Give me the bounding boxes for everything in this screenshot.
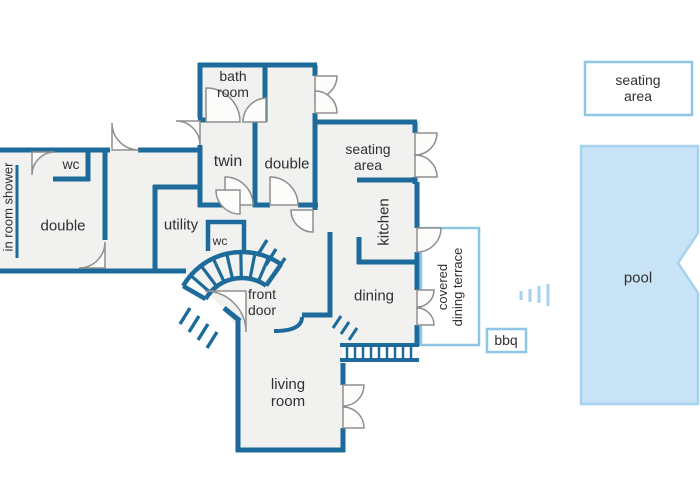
outdoor-seating-box (585, 62, 692, 115)
door-twin-west (176, 121, 200, 145)
bbq-box (487, 329, 526, 352)
door-corridor-exterior (112, 123, 139, 150)
door-double-french-b (315, 91, 337, 113)
door-living-east-b (343, 407, 364, 428)
door-seating-french-b (415, 155, 437, 177)
floorplan-graphic (0, 0, 700, 500)
door-living-east-a (343, 385, 364, 406)
pool-shape (581, 146, 698, 404)
floor-plan: bath room twin double seating area wc do… (0, 0, 700, 500)
door-seating-french-a (415, 133, 437, 155)
pool-steps-icon (521, 284, 548, 306)
step-band-ticks (347, 347, 411, 358)
entry-steps-dashes (180, 308, 217, 348)
